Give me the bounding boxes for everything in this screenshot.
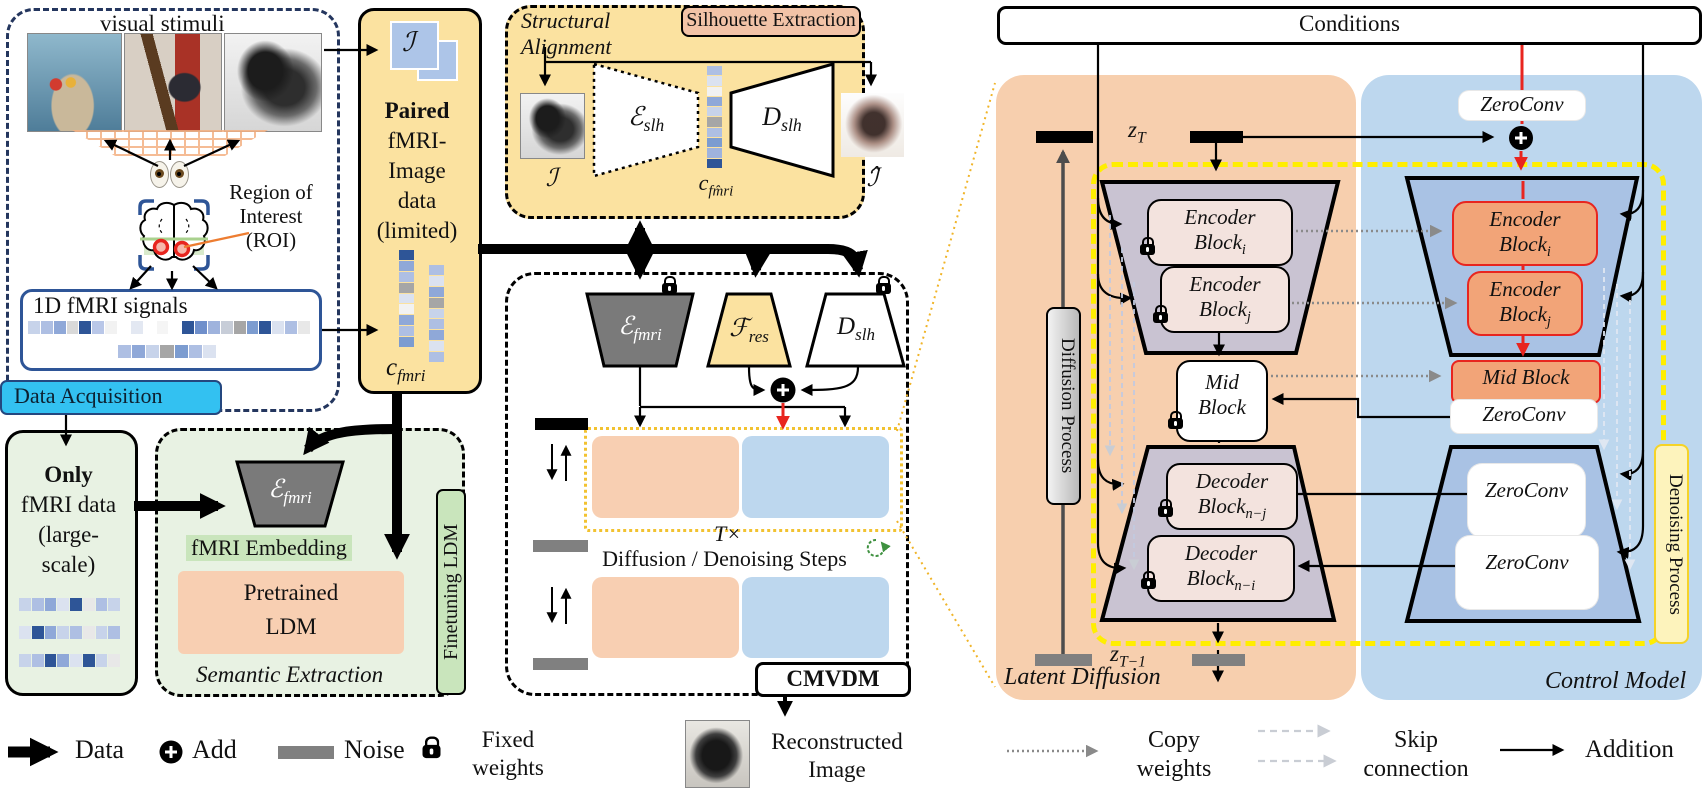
denoising-process-label: Denoising Process [1654, 444, 1689, 644]
only-fmri-data-label: Only fMRI data (large- scale) [5, 460, 132, 580]
fixed-weights-lock-icon [1153, 312, 1168, 323]
finetuning-ldm-label: Finetuning LDM [436, 489, 466, 695]
decoder-block-n-j: DecoderBlockn−j [1166, 463, 1298, 530]
legend-addition-label: Addition [1585, 736, 1674, 764]
fmri-embedding-label: fMRI Embedding [186, 535, 352, 561]
legend-copy-weights-label: Copyweights [1118, 726, 1230, 784]
legend-noise-bar [278, 746, 334, 759]
latent-blue-rect [742, 577, 889, 658]
fmri-signals-title: 1D fMRI signals [33, 293, 188, 319]
input-image-symbol: ℐ [520, 163, 583, 193]
legend-lock-icon [423, 745, 441, 758]
cmvdm-fmri-encoder-label: ℰfmri [584, 311, 696, 345]
right-eye-icon [170, 161, 189, 188]
fmri-signal-row [118, 345, 216, 358]
roi-label: Region ofInterest(ROI) [216, 180, 326, 252]
zeroconv-box: ZeroConv [1468, 464, 1585, 537]
t-times-label: T× [714, 521, 741, 547]
kayak-photo [27, 33, 122, 132]
control-encoder-block-j: EncoderBlockj [1467, 271, 1583, 336]
cmvdm-architecture-figure: visual stimuli Region ofInterest(ROI) 1D… [0, 0, 1707, 788]
data-bar [1190, 131, 1243, 143]
latent-diffusion-caption: Latent Diffusion [1004, 664, 1161, 691]
output-image-symbol: ℐ̂ [841, 163, 904, 193]
reconstructed-image-caption: ReconstructedImage [752, 728, 922, 784]
conditions-box: Conditions [997, 6, 1702, 45]
data-bar [1036, 131, 1093, 143]
decoder-block-n-i: DecoderBlockn−i [1147, 535, 1295, 602]
pretrained-ldm-box: PretrainedLDM [178, 571, 404, 654]
fmri-signal-row [28, 321, 310, 334]
brain-roi-icon [136, 197, 212, 275]
fixed-weights-lock-icon [1158, 506, 1173, 517]
legend-add-label: Add [192, 735, 237, 765]
latent-orange-rect [592, 577, 739, 658]
cmvdm-silhouette-decoder-label: Dslh [804, 313, 908, 345]
fixed-weights-lock-icon [1141, 578, 1156, 589]
fixed-weights-lock-icon [1140, 244, 1155, 255]
legend-fixed-weights-label: Fixedweights [452, 726, 564, 782]
legend-skip-connection-label: Skipconnection [1348, 726, 1484, 784]
fixed-weights-lock-icon [876, 283, 891, 294]
cmvdm-tag: CMVDM [755, 662, 911, 697]
legend-data-label: Data [75, 735, 124, 765]
left-eye-icon [150, 161, 169, 188]
semantic-extraction-caption: Semantic Extraction [196, 662, 383, 688]
mid-block: MidBlock [1176, 360, 1268, 442]
image-symbol: ℐ [402, 27, 415, 58]
diffusion-process-label: Diffusion Process [1046, 307, 1081, 505]
fmri-signal-row [19, 598, 120, 611]
latent-blue-rect [742, 436, 889, 518]
fmri-signal-column [429, 265, 444, 362]
visual-stimuli-title: visual stimuli [100, 11, 225, 37]
zt-label: zT [1128, 117, 1146, 148]
latent-orange-rect [592, 436, 739, 518]
encoder-block-i: EncoderBlocki [1147, 199, 1293, 266]
data-bar [535, 418, 588, 430]
zeroconv-box: ZeroConv [1456, 536, 1598, 609]
structural-alignment-label: StructuralAlignment [521, 8, 611, 60]
control-mid-block: Mid Block [1451, 360, 1601, 404]
encoder-block-j: EncoderBlockj [1160, 266, 1290, 333]
reconstructed-image-photo [685, 720, 750, 788]
noise-bar [1192, 654, 1245, 666]
chat-fmri-label: cfm̂ri [676, 170, 756, 200]
noise-bar [533, 658, 588, 670]
control-encoder-block-i: EncoderBlocki [1452, 201, 1598, 266]
latent-code-column [707, 66, 722, 168]
fmri-signal-row [19, 654, 120, 667]
residual-module-label: ℱres [704, 313, 794, 347]
data-acquisition-label: Data Acquisition [0, 380, 222, 415]
silhouette-input-photo [520, 93, 585, 159]
harp-photo [124, 33, 222, 132]
legend-noise-label: Noise [344, 735, 405, 765]
fixed-weights-lock-icon [662, 283, 677, 294]
silhouette-extraction-title: Silhouette Extraction [681, 6, 861, 37]
control-model-caption: Control Model [1545, 668, 1697, 695]
zeroconv-box: ZeroConv [1451, 400, 1597, 433]
silhouette-output-photo [841, 93, 904, 157]
fixed-weights-lock-icon [1168, 418, 1183, 429]
silhouette-encoder-label: ℰslh [591, 102, 701, 136]
fmri-encoder-label: ℰfmri [234, 474, 346, 508]
paired-data-label: Paired fMRI- Image data (limited) [359, 96, 475, 246]
fmri-signal-row [19, 626, 120, 639]
silhouette-decoder-label: Dslh [728, 102, 836, 136]
fmri-signal-column [399, 250, 414, 347]
zeroconv-box: ZeroConv [1459, 91, 1585, 120]
snowmobile-photo [224, 33, 322, 132]
diffusion-denoising-steps-label: Diffusion / Denoising Steps [552, 546, 897, 572]
cfmri-label: cfmri [386, 354, 425, 386]
